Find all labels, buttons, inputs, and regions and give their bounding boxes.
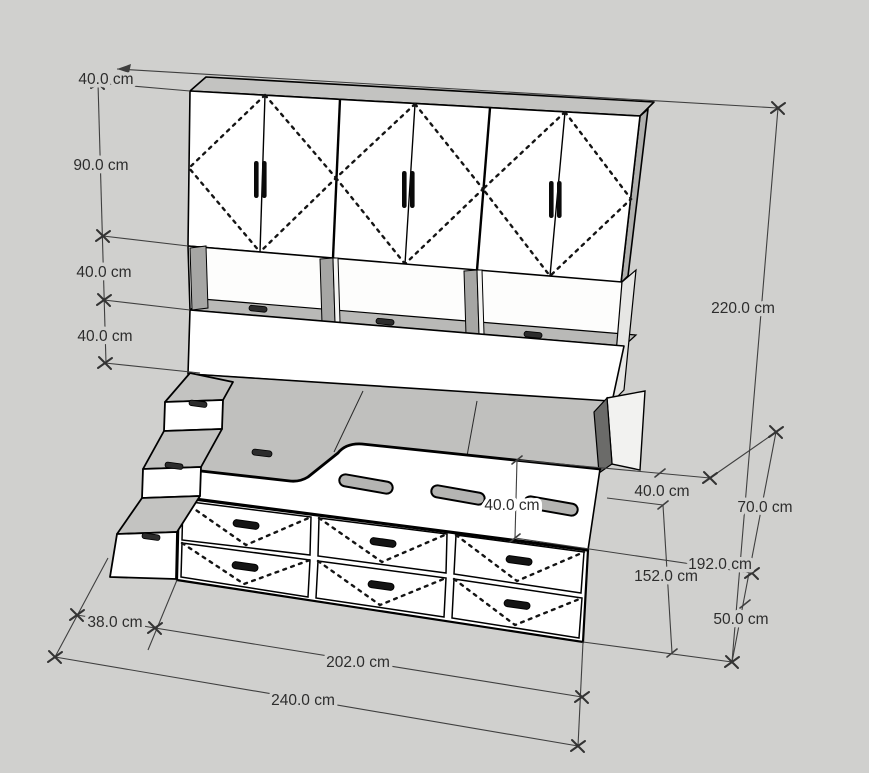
door-handle-icon	[402, 171, 407, 208]
shelf-divider-side	[320, 258, 335, 323]
dim-wardrobe-height: 90.0 cm	[73, 157, 128, 174]
shelf-left-wall	[190, 246, 208, 310]
step-front	[110, 532, 177, 579]
dim-shelf-height: 40.0 cm	[76, 264, 131, 281]
door-handle-icon	[549, 181, 554, 218]
door-handle-icon	[410, 171, 415, 208]
drawing-canvas: 40.0 cm 90.0 cm 40.0 cm 40.0 cm 220.0 cm…	[0, 0, 869, 773]
dim-rail-height: 40.0 cm	[484, 497, 539, 514]
dim-headboard-height: 40.0 cm	[77, 328, 132, 345]
dim-total-height: 220.0 cm	[711, 300, 775, 317]
dim-top-depth: 40.0 cm	[78, 71, 133, 88]
door-handle-icon	[254, 161, 259, 198]
dim-bed-end-depth: 40.0 cm	[634, 483, 689, 500]
dim-drawers-length: 202.0 cm	[326, 654, 390, 671]
dim-right-70: 70.0 cm	[737, 499, 792, 516]
dim-total-length: 240.0 cm	[271, 692, 335, 709]
door-handle-icon	[557, 181, 562, 218]
dim-right-50: 50.0 cm	[713, 611, 768, 628]
door-handle-icon	[262, 161, 267, 198]
dim-stairs-width: 38.0 cm	[87, 614, 142, 631]
step-front	[142, 467, 201, 498]
shelf-divider-side	[464, 270, 479, 335]
dim-length-152: 152.0 cm	[634, 568, 698, 585]
furniture-dimension-drawing: 40.0 cm 90.0 cm 40.0 cm 40.0 cm 220.0 cm…	[0, 0, 869, 773]
bed-end-outer-panel	[607, 391, 645, 470]
bed-right-end	[594, 391, 645, 473]
